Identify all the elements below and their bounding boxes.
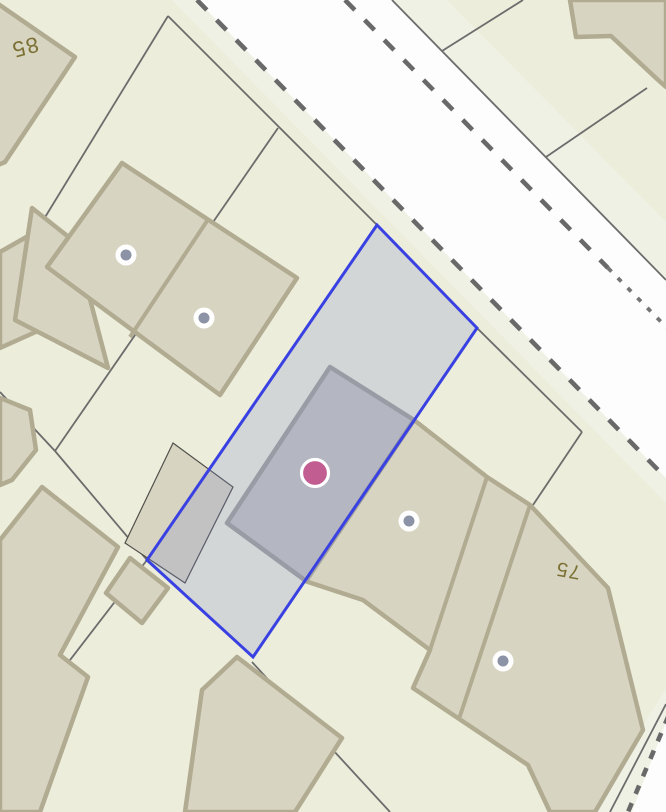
house-number-75-label: 75 <box>554 557 583 583</box>
map-viewport[interactable]: 85 75 <box>0 0 666 812</box>
address-marker-4[interactable] <box>498 656 509 667</box>
poi-marker[interactable] <box>302 460 329 487</box>
address-marker-3[interactable] <box>404 516 415 527</box>
address-marker-1[interactable] <box>121 250 132 261</box>
map-canvas[interactable]: 85 75 <box>0 0 666 812</box>
address-marker-2[interactable] <box>199 313 210 324</box>
